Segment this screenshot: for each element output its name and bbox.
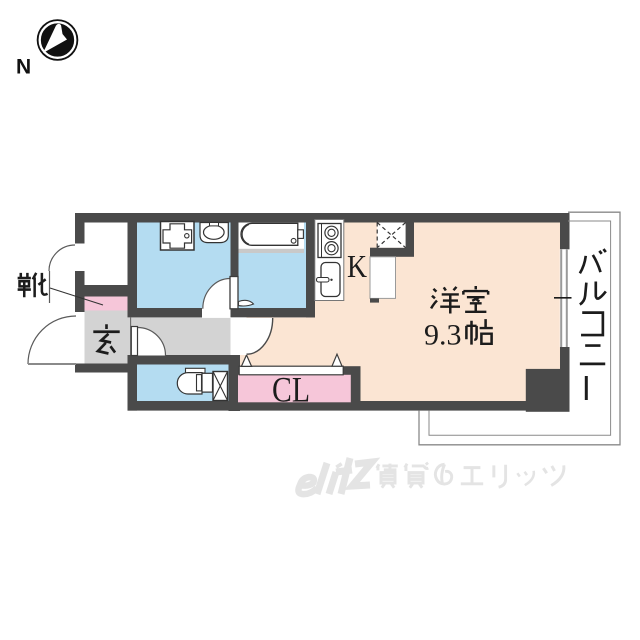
svg-text:CL: CL [272,370,310,410]
svg-text:9.3: 9.3 [424,319,462,352]
svg-text:N: N [16,56,31,79]
svg-text:K: K [347,248,367,284]
